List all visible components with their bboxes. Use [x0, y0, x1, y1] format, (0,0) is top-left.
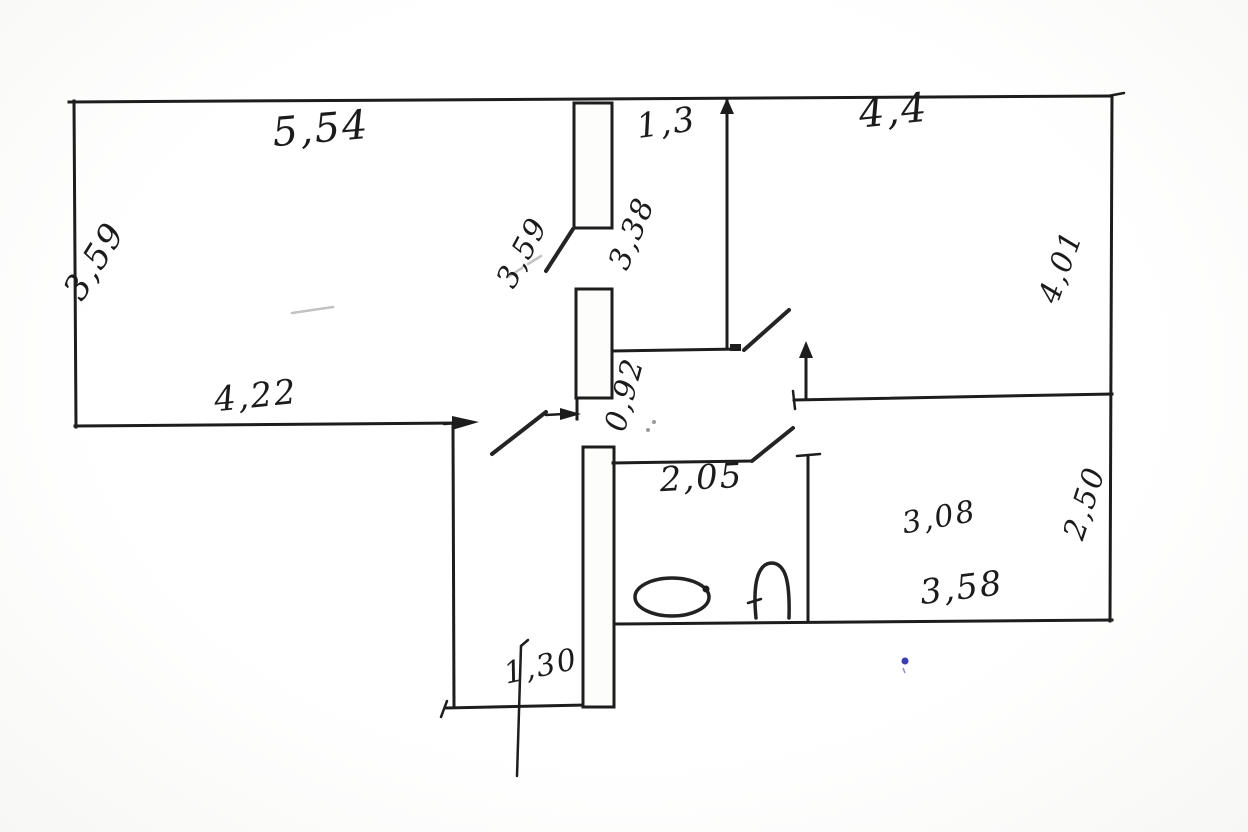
dim-bottom-right-room-depth: 2,50: [1056, 462, 1113, 545]
blue-ink-mark: [902, 658, 909, 665]
dim-bottom-right-room-width: 3,08: [899, 494, 979, 541]
door-leaf-bottom-right-room: [752, 428, 793, 461]
dim-bathroom-width: 2,05: [658, 456, 745, 500]
dim-top-right-room-depth: 4,01: [1031, 226, 1090, 309]
blue-ink-tail: [903, 668, 905, 673]
bathtub-ink-blob: [703, 586, 710, 593]
wall-room-divider: [794, 394, 1112, 400]
stray-dot-2: [652, 420, 656, 424]
tick-corridor-lower: [797, 454, 820, 456]
dim-hall-width: 1,3: [634, 99, 699, 147]
bathtub-oval: [635, 578, 709, 616]
dim-hall-door-left: 3,59: [490, 211, 556, 293]
arrow-up-corridor-wall: [799, 341, 813, 358]
corner-overshoot-top-right: [1108, 93, 1124, 96]
wall-top: [69, 96, 1112, 102]
dim-living-room-bottom-width: 4,22: [211, 372, 299, 421]
partition-upper: [574, 103, 612, 228]
door-swings: [492, 229, 793, 461]
scanned-floor-plan: 5,54 3,59 1,3 3,59 3,38 4,4 4,01 4,22 0,…: [0, 0, 1248, 832]
wall-bottom-right: [613, 620, 1112, 624]
tick-divider-left: [793, 391, 795, 409]
bathroom-fixtures: [635, 563, 789, 618]
dim-top-left-room-width: 5,54: [271, 102, 372, 156]
door-leaf-living-room: [492, 412, 546, 454]
floor-plan-canvas: 5,54 3,59 1,3 3,59 3,38 4,4 4,01 4,22 0,…: [0, 0, 1248, 832]
wall-extension-left: [453, 426, 454, 707]
dim-top-right-room-width: 4,4: [856, 85, 931, 138]
wall-extension-bottom: [447, 705, 585, 708]
dim-top-left-room-depth: 3,59: [56, 215, 134, 307]
arrow-up-hall-wall: [720, 98, 734, 114]
wall-hall-bottom: [612, 349, 739, 351]
door-arc: [755, 563, 789, 618]
arrow-right-living: [452, 416, 479, 430]
tick-extension-hook: [521, 640, 528, 646]
interior-walls: [574, 101, 1112, 707]
partition-middle: [576, 289, 612, 398]
dim-bottom-right-room-bottom-width: 3,58: [918, 563, 1006, 613]
dim-extension-width: 1,30: [501, 642, 581, 692]
pencil-smudge: [292, 307, 333, 313]
stray-dot-1: [646, 428, 650, 432]
door-leaf-top-right-room: [744, 310, 789, 350]
wall-right: [1110, 96, 1112, 621]
partition-lower: [583, 447, 614, 707]
wall-living-bottom: [75, 423, 457, 426]
door-hinge-mark: [730, 344, 741, 351]
